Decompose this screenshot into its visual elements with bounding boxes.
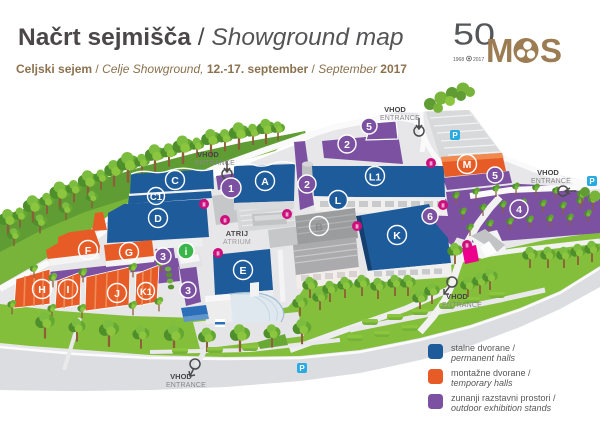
svg-text:VHOD: VHOD — [170, 372, 192, 381]
svg-text:ii: ii — [441, 204, 445, 210]
svg-text:3: 3 — [160, 251, 166, 263]
svg-text:5: 5 — [366, 121, 372, 133]
svg-text:zunanji razstavni prostori /: zunanji razstavni prostori / — [451, 393, 556, 403]
svg-text:3: 3 — [185, 285, 191, 297]
svg-text:B: B — [315, 222, 323, 234]
svg-text:C: C — [171, 175, 179, 187]
svg-text:M: M — [486, 32, 514, 69]
svg-text:VHOD: VHOD — [446, 292, 468, 301]
svg-text:C1: C1 — [150, 192, 163, 203]
svg-text:L1: L1 — [369, 172, 381, 184]
svg-text:permanent halls: permanent halls — [450, 353, 516, 363]
svg-text:L: L — [335, 195, 342, 207]
svg-text:G: G — [125, 247, 133, 259]
svg-text:M: M — [463, 159, 472, 171]
svg-text:ii: ii — [285, 213, 289, 219]
svg-text:ENTRANCE: ENTRANCE — [442, 302, 482, 309]
svg-text:6: 6 — [427, 211, 433, 223]
svg-text:4: 4 — [516, 204, 522, 216]
svg-text:ii: ii — [429, 162, 433, 168]
svg-text:K1: K1 — [140, 287, 153, 298]
svg-text:ATRIJ: ATRIJ — [226, 229, 249, 238]
svg-text:D: D — [154, 213, 162, 225]
svg-text:VHOD: VHOD — [384, 105, 406, 114]
svg-text:ATRIUM: ATRIUM — [223, 239, 251, 246]
svg-text:S: S — [540, 32, 562, 69]
svg-text:montažne dvorane /: montažne dvorane / — [451, 368, 531, 378]
svg-text:ENTRANCE: ENTRANCE — [166, 382, 206, 389]
svg-text:E: E — [239, 265, 246, 277]
svg-text:outdoor exhibition stands: outdoor exhibition stands — [451, 403, 552, 413]
svg-text:A: A — [261, 176, 269, 188]
svg-text:P: P — [589, 177, 595, 186]
svg-text:I: I — [67, 284, 70, 296]
svg-text:stalne dvorane /: stalne dvorane / — [451, 343, 516, 353]
svg-text:ii: ii — [355, 225, 359, 231]
svg-text:i: i — [185, 247, 188, 258]
svg-text:ii: ii — [465, 244, 469, 250]
svg-text:Načrt sejmišča / Showground ma: Načrt sejmišča / Showground map — [18, 24, 403, 51]
svg-text:Celjski sejem / Celje Showgrou: Celjski sejem / Celje Showground, 12.-17… — [16, 62, 407, 76]
svg-text:VHOD: VHOD — [197, 150, 219, 159]
svg-text:J: J — [114, 288, 120, 300]
svg-text:P: P — [452, 131, 458, 140]
svg-text:ii: ii — [223, 219, 227, 225]
svg-text:2017: 2017 — [473, 57, 484, 63]
svg-text:temporary halls: temporary halls — [451, 378, 513, 388]
svg-text:2: 2 — [304, 179, 310, 191]
svg-text:K: K — [393, 230, 401, 242]
svg-text:5: 5 — [492, 170, 498, 182]
svg-text:1: 1 — [228, 183, 234, 195]
svg-text:VHOD: VHOD — [537, 168, 559, 177]
svg-text:ENTRANCE: ENTRANCE — [380, 115, 420, 122]
svg-text:P: P — [299, 364, 305, 373]
svg-text:H: H — [38, 284, 46, 296]
svg-text:1968: 1968 — [453, 57, 464, 63]
svg-text:ENTRANCE: ENTRANCE — [195, 160, 235, 167]
svg-text:F: F — [85, 245, 92, 257]
svg-text:ii: ii — [202, 203, 206, 209]
svg-text:2: 2 — [344, 139, 350, 151]
svg-text:ENTRANCE: ENTRANCE — [531, 178, 571, 185]
svg-text:ii: ii — [216, 252, 220, 258]
